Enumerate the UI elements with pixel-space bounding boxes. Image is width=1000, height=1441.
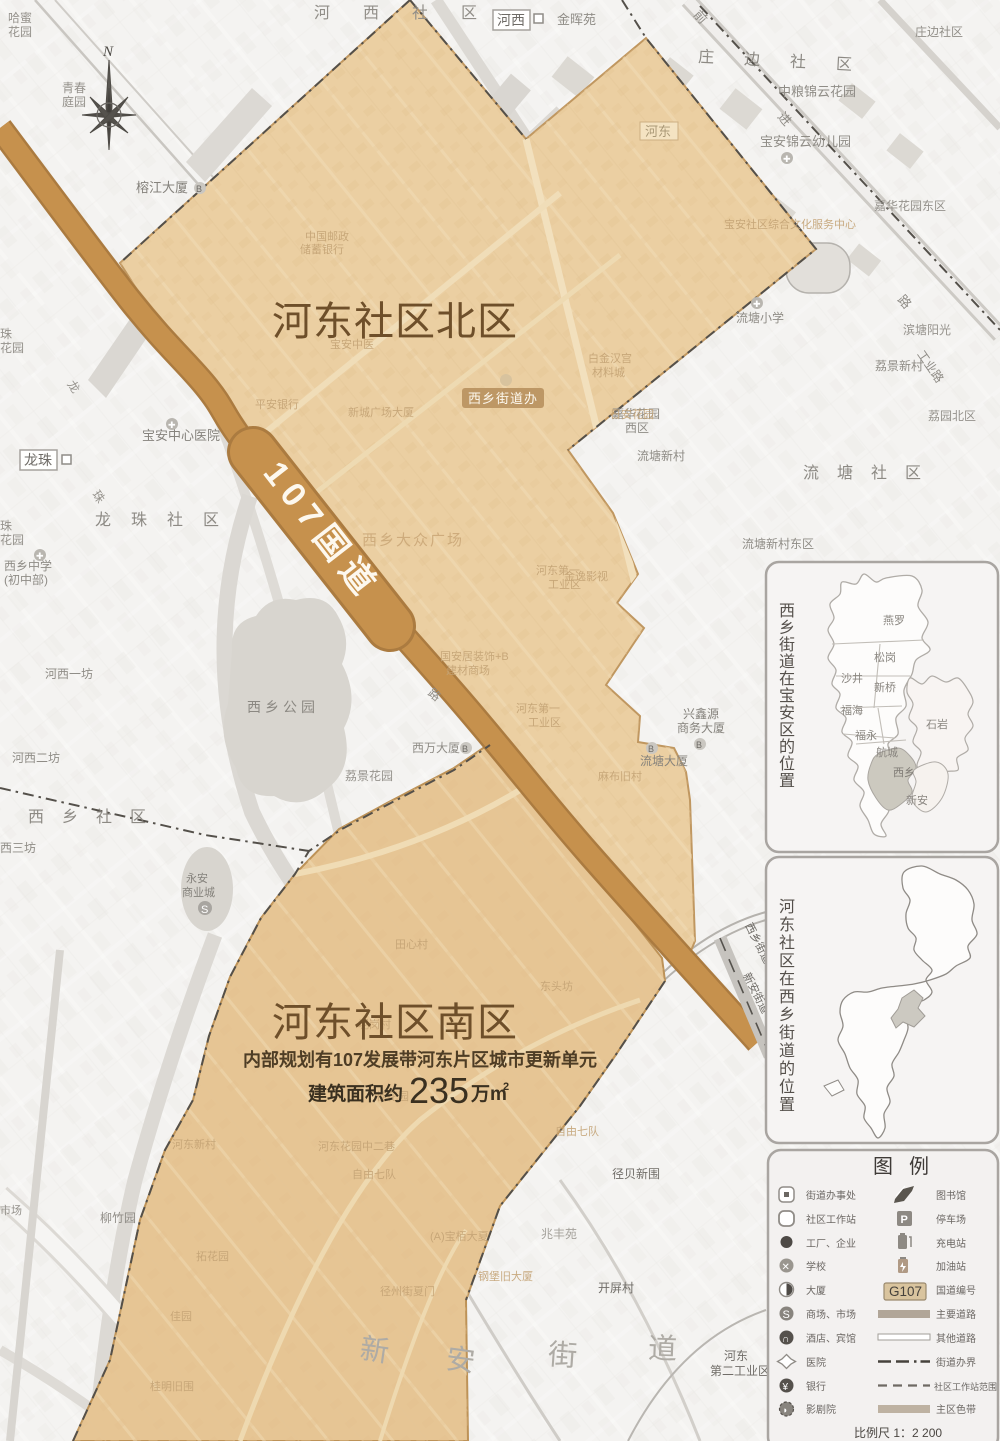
svg-text:(初中部): (初中部) [4, 572, 48, 587]
svg-text:B: B [648, 744, 654, 754]
svg-text:自由七队: 自由七队 [352, 1167, 396, 1181]
svg-text:道: 道 [647, 1332, 677, 1366]
svg-text:市场: 市场 [0, 1203, 22, 1217]
svg-text:河东第一: 河东第一 [516, 701, 560, 715]
svg-text:在: 在 [779, 970, 795, 988]
svg-text:2: 2 [503, 1081, 509, 1093]
svg-text:荔景花园: 荔景花园 [345, 768, 393, 783]
svg-text:(A)宝栢大夏: (A)宝栢大夏 [430, 1229, 489, 1243]
svg-text:主区色带: 主区色带 [936, 1403, 976, 1416]
svg-text:社区工作站: 社区工作站 [806, 1213, 856, 1226]
svg-text:河: 河 [779, 898, 795, 916]
svg-text:B: B [196, 184, 202, 194]
svg-text:图书馆: 图书馆 [936, 1189, 966, 1202]
svg-text:大厦: 大厦 [806, 1284, 826, 1297]
svg-text:医院: 医院 [806, 1356, 826, 1369]
svg-text:位: 位 [779, 1078, 795, 1096]
svg-text:流塘社区: 流塘社区 [803, 464, 939, 482]
svg-text:花园: 花园 [0, 532, 24, 547]
svg-text:中粮锦云花园: 中粮锦云花园 [778, 84, 856, 99]
svg-text:榕江大厦: 榕江大厦 [136, 180, 188, 195]
svg-text:滨塘阳光: 滨塘阳光 [903, 322, 951, 337]
svg-text:流塘新村: 流塘新村 [637, 448, 685, 463]
svg-text:其他道路: 其他道路 [936, 1332, 976, 1345]
svg-text:西区: 西区 [625, 421, 649, 435]
svg-text:西乡: 西乡 [893, 766, 915, 779]
svg-text:酒店、宾馆: 酒店、宾馆 [806, 1332, 856, 1345]
svg-text:内部规划有107发展带河东片区城市更新单元: 内部规划有107发展带河东片区城市更新单元 [243, 1049, 597, 1070]
svg-text:P: P [901, 1214, 908, 1226]
svg-text:庭园: 庭园 [62, 94, 86, 109]
svg-text:N: N [102, 44, 114, 60]
svg-text:街: 街 [547, 1338, 578, 1373]
svg-text:青春: 青春 [62, 81, 86, 95]
svg-text:桂明旧围: 桂明旧围 [150, 1379, 194, 1393]
svg-text:银行: 银行 [806, 1380, 826, 1393]
svg-text:宝: 宝 [779, 687, 795, 705]
svg-text:龙珠社区: 龙珠社区 [95, 511, 239, 529]
svg-text:河东新村: 河东新村 [172, 1137, 216, 1151]
svg-text:河东社区北区: 河东社区北区 [272, 300, 518, 344]
svg-text:开屏村: 开屏村 [598, 1281, 634, 1295]
svg-text:✕: ✕ [782, 1262, 790, 1273]
svg-text:街道办事处: 街道办事处 [806, 1189, 856, 1202]
svg-text:新城广场大厦: 新城广场大厦 [348, 405, 414, 419]
svg-text:流塘大厦: 流塘大厦 [640, 753, 688, 768]
svg-text:田心村: 田心村 [395, 937, 428, 951]
svg-text:永安: 永安 [186, 871, 208, 885]
svg-text:比例尺 1：2 200: 比例尺 1：2 200 [854, 1426, 942, 1440]
svg-text:乡: 乡 [779, 1007, 795, 1024]
svg-text:福海: 福海 [841, 703, 863, 717]
svg-text:图例: 图例 [873, 1155, 945, 1178]
svg-text:S: S [201, 904, 208, 916]
svg-text:钢堡旧大厦: 钢堡旧大厦 [478, 1269, 533, 1283]
svg-text:柳竹园: 柳竹园 [100, 1211, 136, 1225]
svg-text:充电站: 充电站 [936, 1237, 966, 1250]
svg-text:道: 道 [779, 1042, 795, 1060]
svg-text:兆丰苑: 兆丰苑 [541, 1227, 577, 1241]
svg-text:国道编号: 国道编号 [936, 1284, 976, 1297]
svg-text:B: B [696, 740, 702, 750]
svg-text:区: 区 [779, 722, 795, 739]
svg-text:新安: 新安 [906, 793, 928, 807]
svg-text:航城: 航城 [876, 745, 898, 759]
svg-text:商场、市场: 商场、市场 [806, 1308, 856, 1321]
svg-text:万m: 万m [470, 1084, 507, 1105]
svg-text:哈蜜: 哈蜜 [8, 10, 32, 25]
svg-text:福永: 福永 [855, 728, 877, 742]
svg-text:道: 道 [779, 653, 795, 671]
svg-text:白金汉宫: 白金汉宫 [588, 351, 632, 365]
svg-text:第二工业区: 第二工业区 [710, 1364, 770, 1378]
svg-text:✚: ✚ [783, 154, 791, 164]
svg-text:河西一坊: 河西一坊 [45, 666, 93, 681]
svg-text:储蓄银行: 储蓄银行 [300, 242, 344, 256]
svg-text:G107: G107 [889, 1284, 922, 1299]
svg-text:西: 西 [779, 603, 795, 620]
svg-text:荔景新村: 荔景新村 [875, 358, 923, 373]
svg-text:影剧院: 影剧院 [806, 1403, 836, 1416]
svg-text:主要道路: 主要道路 [936, 1308, 976, 1321]
svg-text:商业城: 商业城 [182, 885, 215, 899]
svg-text:河东: 河东 [645, 124, 671, 139]
svg-text:安: 安 [779, 704, 795, 722]
svg-text:西乡街道办: 西乡街道办 [468, 391, 538, 406]
svg-text:西三坊: 西三坊 [0, 840, 36, 855]
svg-text:石岩: 石岩 [926, 717, 948, 731]
svg-text:加油站: 加油站 [936, 1260, 966, 1273]
svg-text:安: 安 [444, 1342, 477, 1379]
svg-text:街: 街 [779, 1024, 795, 1042]
svg-text:嘉华花园东区: 嘉华花园东区 [874, 198, 946, 213]
svg-text:拓花园: 拓花园 [196, 1249, 229, 1263]
svg-text:珠: 珠 [0, 519, 12, 533]
svg-text:河东社区南区: 河东社区南区 [272, 1001, 518, 1045]
svg-text:西乡公园: 西乡公园 [247, 699, 319, 715]
svg-text:◗: ◗ [783, 1405, 788, 1415]
svg-text:学校: 学校 [806, 1260, 826, 1273]
svg-text:自由七队: 自由七队 [555, 1124, 599, 1138]
svg-text:径州街夏门: 径州街夏门 [380, 1284, 435, 1298]
svg-text:¥: ¥ [782, 1382, 789, 1393]
svg-text:金晖苑: 金晖苑 [557, 12, 596, 27]
svg-text:工厂、企业: 工厂、企业 [806, 1237, 856, 1250]
svg-text:兴鑫源: 兴鑫源 [683, 706, 719, 721]
svg-text:宝安锦云幼儿园: 宝安锦云幼儿园 [760, 134, 851, 149]
svg-text:西万大厦: 西万大厦 [412, 741, 460, 755]
svg-text:新: 新 [358, 1332, 391, 1369]
svg-text:平安银行: 平安银行 [255, 397, 299, 411]
svg-text:西乡中学: 西乡中学 [4, 558, 52, 573]
svg-text:庄边社区: 庄边社区 [915, 24, 963, 39]
svg-text:✚: ✚ [168, 420, 176, 430]
svg-text:工业区: 工业区 [528, 716, 561, 729]
svg-text:西: 西 [779, 989, 795, 1006]
svg-text:龙珠: 龙珠 [24, 452, 52, 468]
svg-text:停车场: 停车场 [936, 1213, 966, 1226]
svg-text:径贝新围: 径贝新围 [612, 1166, 660, 1181]
svg-text:西乡大众广场: 西乡大众广场 [362, 532, 464, 549]
svg-text:国安居装饰+B: 国安居装饰+B [440, 649, 509, 663]
svg-text:流塘新村东区: 流塘新村东区 [742, 536, 814, 551]
svg-text:社区工作站范围: 社区工作站范围 [934, 1381, 997, 1392]
svg-text:商务大厦: 商务大厦 [677, 720, 725, 735]
svg-text:街道办界: 街道办界 [936, 1356, 976, 1369]
svg-text:松岗: 松岗 [874, 650, 896, 664]
svg-text:燕罗: 燕罗 [883, 614, 905, 627]
svg-text:花园: 花园 [0, 340, 24, 355]
svg-text:位: 位 [779, 755, 795, 773]
svg-text:东: 东 [779, 916, 795, 934]
svg-text:河西社区: 河西社区 [314, 4, 510, 22]
svg-text:社: 社 [779, 934, 795, 952]
svg-text:建材商场: 建材商场 [446, 663, 490, 677]
svg-text:的: 的 [779, 1060, 795, 1078]
svg-text:河东: 河东 [724, 1349, 748, 1363]
svg-text:建筑面积约: 建筑面积约 [308, 1082, 403, 1105]
svg-text:珠: 珠 [0, 327, 12, 341]
svg-text:材料城: 材料城 [592, 365, 625, 379]
svg-text:✚: ✚ [36, 551, 44, 561]
svg-text:B: B [462, 744, 468, 754]
svg-text:宝安中心医院: 宝安中心医院 [142, 428, 220, 443]
svg-text:街: 街 [779, 636, 795, 654]
svg-text:乡: 乡 [779, 620, 795, 637]
svg-text:区: 区 [779, 953, 795, 970]
svg-text:西乡社区: 西乡社区 [28, 808, 164, 826]
svg-text:东头坊: 东头坊 [540, 979, 573, 993]
svg-text:河东第一: 河东第一 [536, 563, 580, 577]
svg-text:花园: 花园 [8, 24, 32, 39]
svg-text:日安花园: 日安花园 [610, 407, 654, 421]
svg-text:S: S [783, 1309, 790, 1321]
svg-text:∩: ∩ [782, 1334, 789, 1345]
svg-text:沙井: 沙井 [841, 671, 863, 685]
svg-text:流塘小学: 流塘小学 [736, 310, 784, 325]
svg-text:麻布旧村: 麻布旧村 [598, 769, 642, 783]
svg-text:河西: 河西 [497, 12, 525, 28]
svg-text:中国邮政: 中国邮政 [305, 229, 349, 243]
svg-text:宝安社区综合文化服务中心: 宝安社区综合文化服务中心 [724, 217, 856, 231]
svg-text:新桥: 新桥 [874, 680, 896, 694]
svg-text:的: 的 [779, 738, 795, 756]
svg-text:235: 235 [409, 1070, 469, 1111]
svg-text:✚: ✚ [753, 299, 761, 309]
svg-text:置: 置 [779, 773, 795, 790]
svg-text:荔园北区: 荔园北区 [928, 409, 976, 423]
svg-text:工业区: 工业区 [548, 578, 581, 591]
svg-text:置: 置 [779, 1097, 795, 1114]
svg-text:在: 在 [779, 670, 795, 688]
svg-text:佳园: 佳园 [170, 1309, 192, 1323]
svg-text:河东花园中二巷: 河东花园中二巷 [318, 1140, 395, 1153]
svg-text:河西二坊: 河西二坊 [12, 750, 60, 765]
